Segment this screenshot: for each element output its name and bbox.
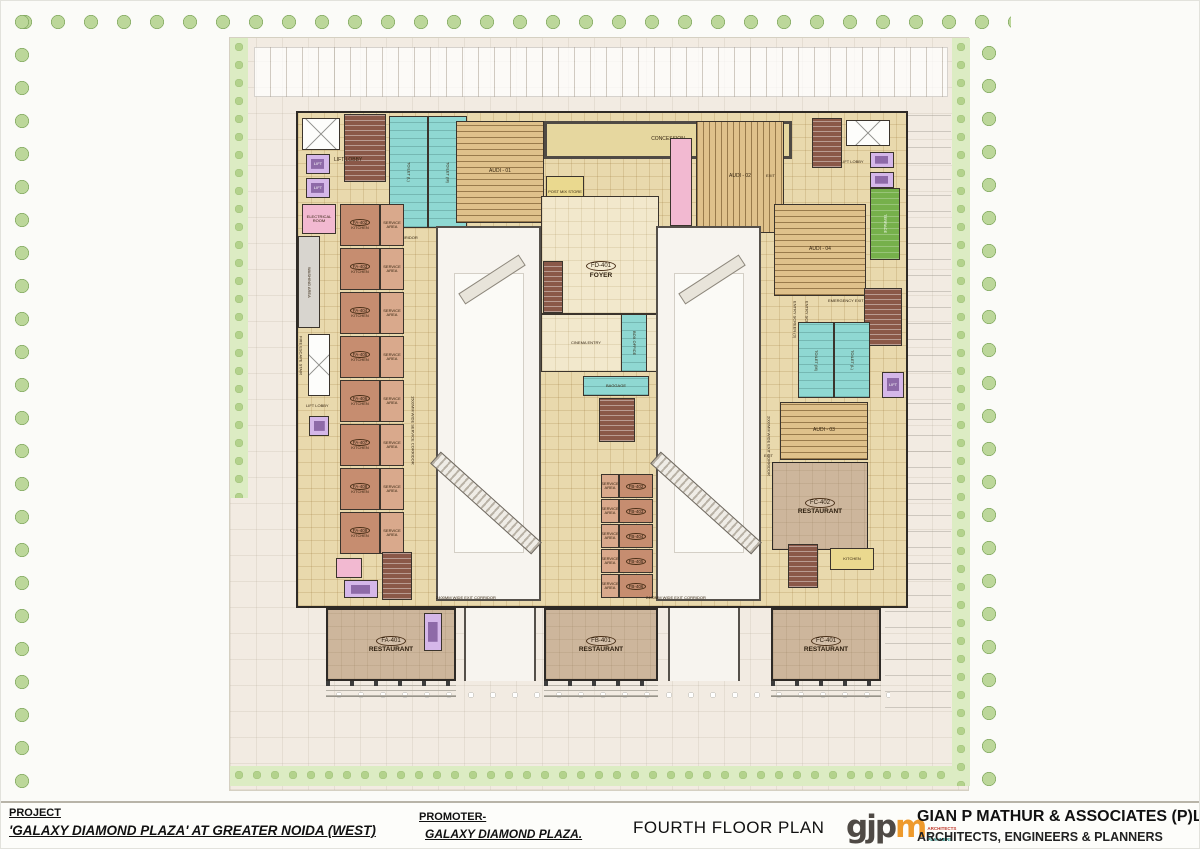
restaurant-fb401: FB-401 RESTAURANT	[544, 608, 658, 681]
washing-area: WASHING AREA	[298, 236, 320, 328]
unit-kitchen-label: KITCHEN	[351, 226, 369, 230]
electrical-room: ELECTRICAL ROOM	[302, 204, 336, 234]
service-area-cell: SERVICE AREA	[601, 474, 619, 498]
lift-label: LIFT	[314, 162, 322, 166]
service-area-cell: SERVICE AREA	[380, 380, 404, 422]
toilet-ladies-right: TOILET (L)	[834, 322, 870, 398]
lift-left-3	[309, 416, 329, 436]
service-area-label: SERVICE AREA	[381, 485, 403, 494]
service-area-label: SERVICE AREA	[601, 532, 619, 541]
lift-bottom-left	[344, 580, 378, 598]
tree-row-left	[6, 6, 37, 794]
toilet-label: TOILET (L)	[850, 350, 854, 370]
promoter-label: PROMOTER-	[419, 811, 486, 823]
hedge-left	[230, 38, 248, 498]
unit-fa405: FA-405KITCHEN	[340, 336, 380, 378]
exit-corridor-2000-label: 2000MM WIDE EXIT CORRIDOR	[766, 416, 770, 512]
audi-04: AUDI - 04	[774, 204, 866, 296]
stair-center	[599, 398, 635, 442]
portico-fb401	[544, 681, 658, 697]
service-room-bl	[336, 558, 362, 578]
hall-void-extension-right	[668, 608, 740, 681]
project-label: PROJECT	[9, 807, 61, 819]
project-name: 'GALAXY DIAMOND PLAZA' AT GREATER NOIDA …	[9, 823, 376, 838]
audi-01: AUDI - 01	[456, 121, 544, 223]
restaurant-fc402: FC-402 RESTAURANT	[772, 462, 868, 550]
terrace-label: TERRACE	[883, 214, 887, 233]
service-area-cell: SERVICE AREA	[601, 549, 619, 573]
stair-bottom-left	[382, 552, 412, 600]
service-area-label: SERVICE AREA	[381, 441, 403, 450]
unit-kitchen-label: KITCHEN	[351, 446, 369, 450]
service-area-label: SERVICE AREA	[601, 582, 619, 591]
drawing-title: FOURTH FLOOR PLAN	[633, 818, 824, 838]
foyer-label-group: FD-401 FOYER	[566, 254, 636, 279]
toilet-label: TOILET (L)	[406, 162, 410, 182]
lift-lobby-left-label: LIFT LOBBY	[334, 158, 368, 164]
unit-fb403: FB-403	[619, 499, 653, 523]
portico-fc401	[771, 681, 881, 697]
toilet-gents-right: TOILET (M)	[798, 322, 834, 398]
gpm-logo: gjpm ARCHITECTS & PLANNERS	[846, 806, 916, 848]
unit-kitchen-label: KITCHEN	[351, 314, 369, 318]
kitchen-right: KITCHEN	[830, 548, 874, 570]
fa401-id-oval: FA-401	[376, 636, 405, 646]
exit-label-fc402: EXIT	[764, 454, 782, 458]
fb401-id-oval: FB-401	[586, 636, 616, 646]
unit-fa404: FA-404KITCHEN	[340, 292, 380, 334]
portico-fa401	[326, 681, 456, 697]
service-area-label: SERVICE AREA	[381, 309, 403, 318]
fire-stair-label: FIRE ESCAPE STAIR	[298, 336, 302, 416]
ahu-room-right	[846, 120, 890, 146]
site-plan-sheet: LIFT LIFT LIFT LOBBY ELECTRICAL ROOM WAS…	[0, 0, 1200, 849]
fc401-name-label: RESTAURANT	[804, 646, 848, 653]
unit-fa408: FA-408KITCHEN	[340, 468, 380, 510]
service-area-label: SERVICE AREA	[601, 507, 619, 516]
audi-02-label: AUDI - 02	[729, 174, 751, 180]
stair-top-right	[812, 118, 842, 168]
box-office: BOX OFFICE	[621, 314, 647, 372]
lift-lobby-right-label: LIFT LOBBY	[841, 160, 867, 164]
foyer-id-oval: FD-401	[586, 261, 616, 271]
ahu-room-left	[302, 118, 340, 150]
service-area-label: SERVICE AREA	[381, 221, 403, 230]
service-rooms-audi2	[670, 138, 692, 226]
box-office-label: BOX OFFICE	[632, 331, 636, 355]
service-area-cell: SERVICE AREA	[601, 499, 619, 523]
service-area-cell: SERVICE AREA	[601, 574, 619, 598]
restaurant-fc401: FC-401 RESTAURANT	[771, 608, 881, 681]
promoter-name: GALAXY DIAMOND PLAZA.	[425, 827, 582, 841]
service-area-label: SERVICE AREA	[381, 529, 403, 538]
service-area-cell: SERVICE AREA	[380, 292, 404, 334]
cinema-entry-label: CINEMA ENTRY	[571, 341, 601, 345]
service-area-label: SERVICE AREA	[601, 482, 619, 491]
lift-right-3: LIFT	[882, 372, 904, 398]
lift-right-1	[870, 152, 894, 168]
unit-fa403: FA-403KITCHEN	[340, 248, 380, 290]
audi-03-label: AUDI - 03	[813, 428, 835, 434]
service-area-cell: SERVICE AREA	[380, 248, 404, 290]
lift-label: LIFT	[314, 186, 322, 190]
audi-04-label: AUDI - 04	[809, 247, 831, 253]
stair-foyer-left	[543, 261, 563, 313]
tree-row-right	[973, 37, 1009, 791]
audi-03: AUDI - 03	[780, 402, 868, 460]
unit-fb405: FB-405	[619, 549, 653, 573]
fb401-name-label: RESTAURANT	[579, 646, 623, 653]
unit-kitchen-label: KITCHEN	[351, 490, 369, 494]
tree-row-top	[9, 6, 1011, 37]
service-area-cell: SERVICE AREA	[380, 424, 404, 466]
fa401-name-label: RESTAURANT	[369, 646, 413, 653]
firm-subtitle: ARCHITECTS, ENGINEERS & PLANNERS	[917, 830, 1163, 844]
electrical-room-label: ELECTRICAL ROOM	[303, 215, 335, 224]
unit-kitchen-label: KITCHEN	[351, 270, 369, 274]
toilet-label: TOILET (M)	[814, 350, 818, 371]
stair-right-bottom	[788, 544, 818, 588]
baggage-room: BAGGAGE	[583, 376, 649, 396]
unit-fa407: FA-407KITCHEN	[340, 424, 380, 466]
service-area-label: SERVICE AREA	[381, 353, 403, 362]
exit-corridor-2400-right-label: 2400MM WIDE EXIT CORRIDOR	[646, 596, 766, 600]
lift-label: LIFT	[889, 383, 897, 387]
baggage-label: BAGGAGE	[606, 384, 626, 388]
post-mix-label: POST MIX STORE	[548, 190, 582, 194]
service-ramp	[308, 334, 330, 396]
service-area-cell: SERVICE AREA	[380, 512, 404, 554]
service-area-cell: SERVICE AREA	[380, 204, 404, 246]
foyer-name-label: FOYER	[566, 272, 636, 279]
toilet-label: TOILET (M)	[445, 162, 449, 183]
service-area-cell: SERVICE AREA	[380, 468, 404, 510]
exit-corridor-2400-left-label: 2400MM WIDE EXIT CORRIDOR	[436, 596, 556, 600]
unit-kitchen-label: KITCHEN	[351, 534, 369, 538]
lift-fa401	[424, 613, 442, 651]
fc401-id-oval: FC-401	[811, 636, 841, 646]
unit-id-oval: FB-403	[626, 508, 647, 515]
hall-void-extension-left	[464, 608, 536, 681]
unit-kitchen-label: KITCHEN	[351, 358, 369, 362]
unit-id-oval: FB-406	[626, 583, 647, 590]
fc402-id-oval: FC-402	[805, 498, 835, 508]
washing-area-label: WASHING AREA	[307, 267, 311, 298]
fc402-name-label: RESTAURANT	[798, 508, 842, 515]
unit-fa402: FA-402KITCHEN	[340, 204, 380, 246]
logo-dark-letters: gjp	[846, 809, 895, 845]
service-area-cell: SERVICE AREA	[601, 524, 619, 548]
lift-left-2: LIFT	[306, 178, 330, 198]
service-area-label: SERVICE AREA	[381, 265, 403, 274]
service-area-label: SERVICE AREA	[601, 557, 619, 566]
entry-screen-3-label: ENTRY SCREEN (3)	[792, 301, 796, 353]
firm-name: GIAN P MATHUR & ASSOCIATES (P)LTD	[917, 808, 1200, 826]
kitchen-label: KITCHEN	[843, 557, 861, 561]
lift-right-2	[870, 172, 894, 188]
unit-fb402: FB-402	[619, 474, 653, 498]
parking-stalls-top	[254, 47, 948, 97]
unit-kitchen-label: KITCHEN	[351, 402, 369, 406]
unit-id-oval: FB-404	[626, 533, 647, 540]
service-corridor-1500-label: 1500MM WIDE SERVICE CORRIDOR	[410, 396, 414, 516]
hedge-right	[952, 38, 970, 786]
terrace: TERRACE	[870, 188, 900, 260]
service-area-cell: SERVICE AREA	[380, 336, 404, 378]
title-bar: PROJECT 'GALAXY DIAMOND PLAZA' AT GREATE…	[1, 801, 1200, 849]
hedge-bottom	[230, 766, 970, 786]
floor-plan: LIFT LIFT LIFT LOBBY ELECTRICAL ROOM WAS…	[296, 96, 908, 704]
audi-01-label: AUDI - 01	[489, 169, 511, 175]
service-area-label: SERVICE AREA	[381, 397, 403, 406]
lift-left-1: LIFT	[306, 154, 330, 174]
stair-top-left	[344, 114, 386, 182]
unit-fa409: FA-409KITCHEN	[340, 512, 380, 554]
exit-label-top: EXIT	[766, 174, 786, 178]
gpm-logo-letters: gjpm	[846, 812, 925, 843]
lift-lobby-mid-label: LIFT LOBBY	[306, 404, 336, 408]
unit-fa406: FA-406KITCHEN	[340, 380, 380, 422]
unit-fb404: FB-404	[619, 524, 653, 548]
unit-id-oval: FB-405	[626, 558, 647, 565]
unit-id-oval: FB-402	[626, 483, 647, 490]
